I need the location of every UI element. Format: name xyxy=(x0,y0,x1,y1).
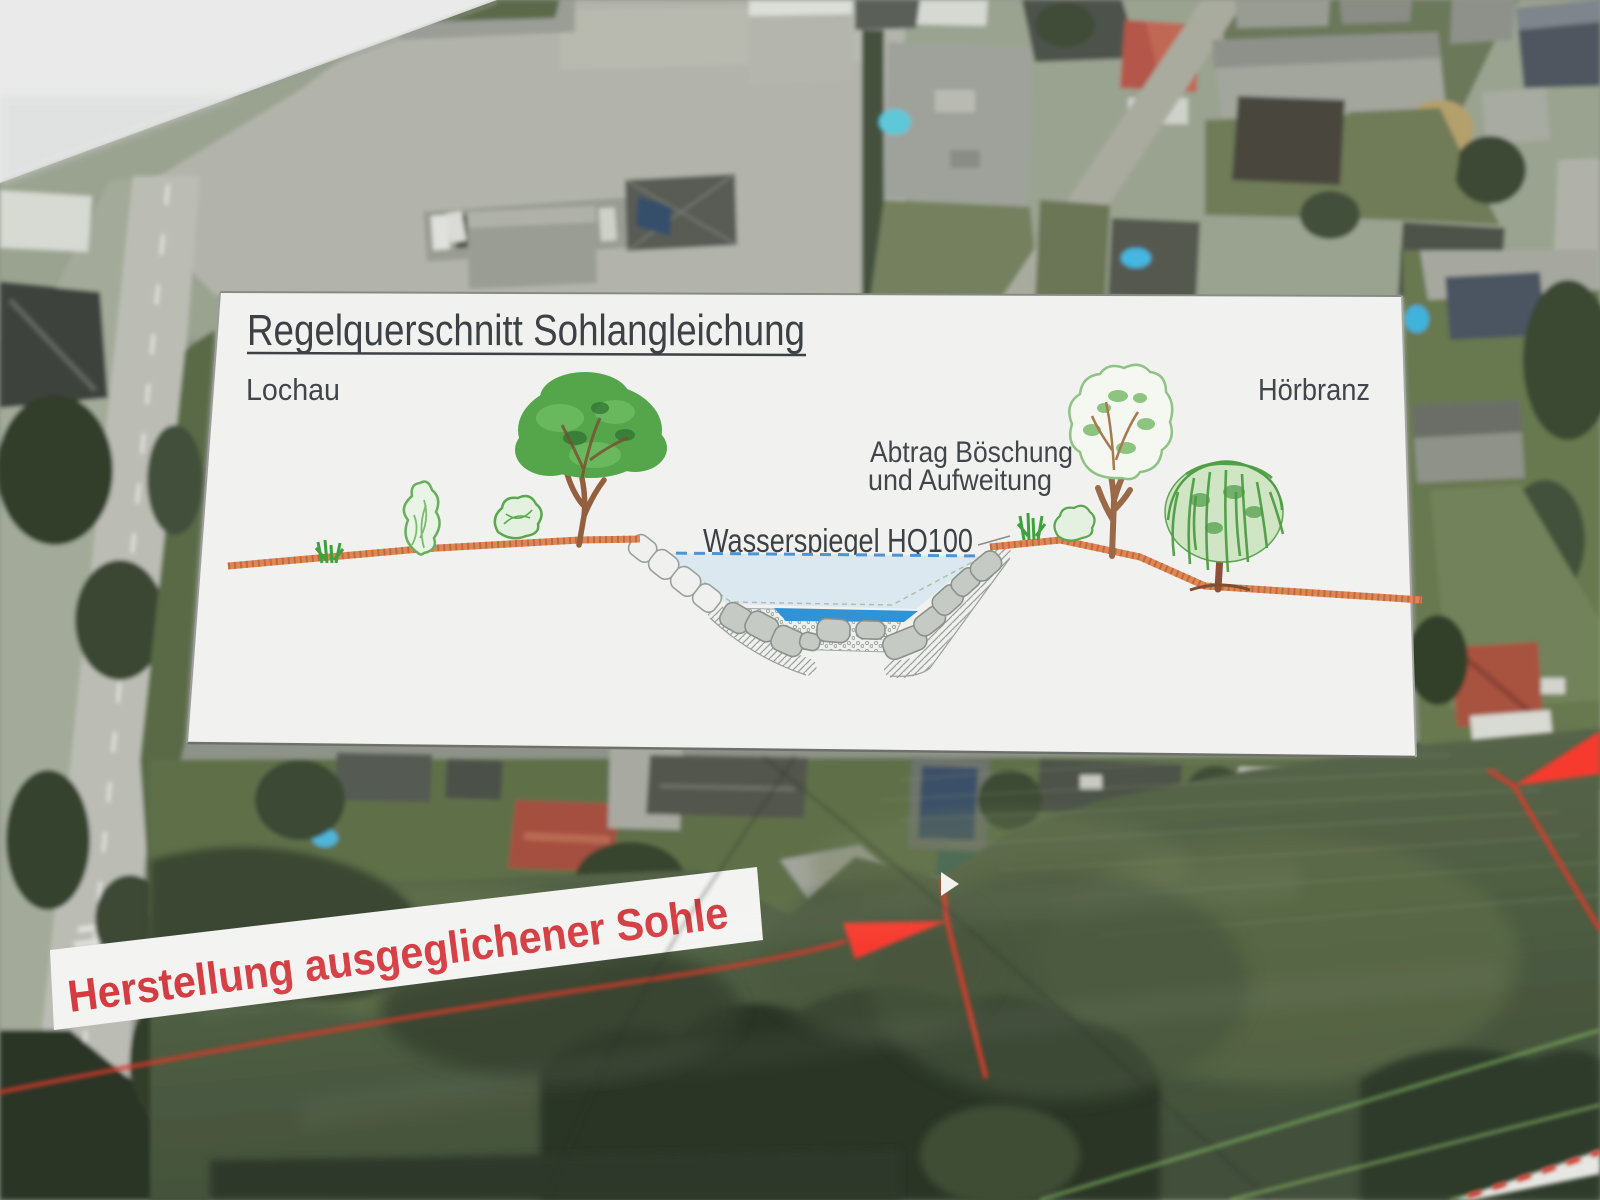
svg-text:Lochau: Lochau xyxy=(246,372,340,407)
svg-text:Regelquerschnitt Sohlangleichu: Regelquerschnitt Sohlangleichung xyxy=(247,306,805,355)
svg-text:und Aufweitung: und Aufweitung xyxy=(868,464,1052,497)
svg-text:Wasserspiegel HQ100: Wasserspiegel HQ100 xyxy=(703,522,973,559)
svg-text:Hörbranz: Hörbranz xyxy=(1258,372,1370,407)
